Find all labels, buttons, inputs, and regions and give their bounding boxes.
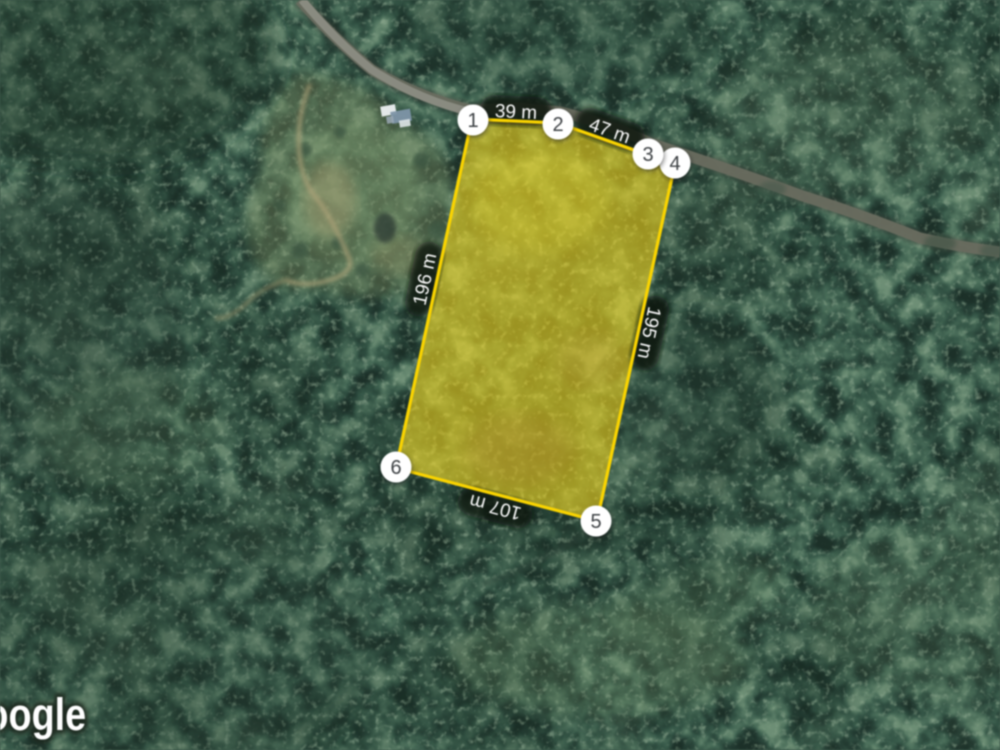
svg-text:2: 2 [552, 114, 563, 136]
svg-text:1: 1 [467, 110, 478, 132]
svg-text:Google: Google [0, 689, 86, 740]
svg-text:4: 4 [669, 153, 680, 175]
svg-text:3: 3 [642, 144, 653, 166]
svg-text:6: 6 [390, 457, 401, 479]
svg-text:39 m: 39 m [494, 101, 537, 124]
svg-text:5: 5 [590, 511, 601, 533]
